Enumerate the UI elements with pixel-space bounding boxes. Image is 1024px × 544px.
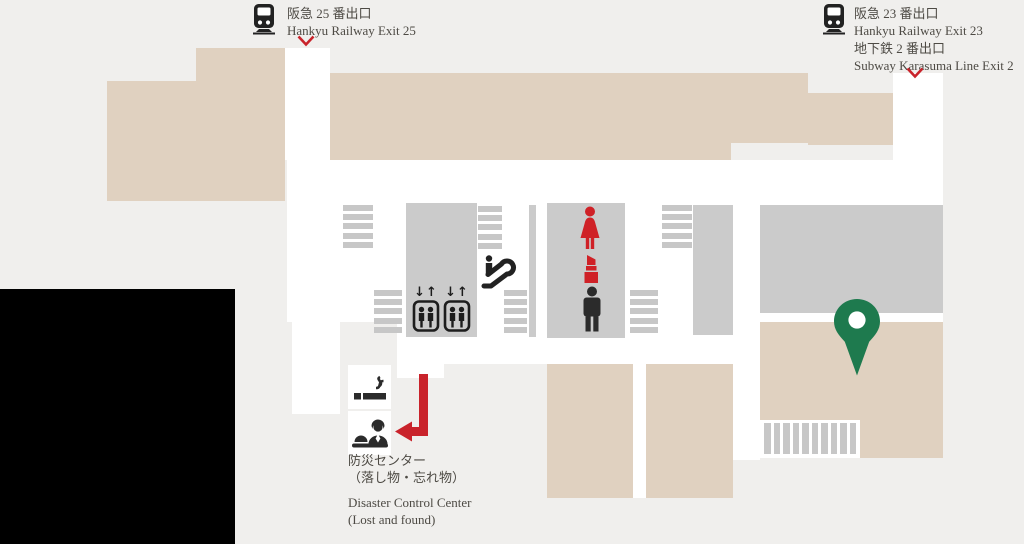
building-block [330,73,731,160]
structure-block [693,205,733,335]
subway-2-jp: 地下鉄 2 番出口 [854,40,1014,57]
elevator-icon: ↓↑ [442,286,472,332]
man-restroom-icon [578,286,606,333]
disaster-jp-1: 防災センター [348,452,471,469]
disaster-center-label: 防災センター （落し物・忘れ物） Disaster Control Center… [348,452,471,529]
disaster-en-1: Disaster Control Center [348,494,471,511]
stairs-icon [630,290,658,333]
down-chevron-icon [906,67,924,79]
corridor [893,73,943,163]
elevator-icon: ↓↑ [411,286,441,332]
stairs-icon [760,420,860,458]
smoking-area-icon [352,370,388,404]
disaster-jp-2: （落し物・忘れ物） [348,469,471,486]
building-block [731,73,808,143]
stairs-icon [343,205,373,248]
subway-2-en: Subway Karasuma Line Exit 2 [854,57,1014,74]
down-chevron-icon [297,35,315,47]
building-block [196,48,285,201]
stairs-icon [374,290,402,333]
train-icon [252,3,276,35]
label-exit-23: 阪急 23 番出口 Hankyu Railway Exit 23 [854,5,983,39]
building-block [646,364,733,498]
smoking-area [348,365,391,409]
corridor [733,364,760,460]
reception-icon [351,417,389,450]
disaster-control-center [348,411,391,455]
structure-block [760,205,943,313]
corridor [285,48,330,160]
route-arrow-icon [393,374,431,446]
elevator-arrows: ↓↑ [411,286,441,300]
wall [529,205,536,337]
stairs-icon [478,206,502,249]
corridor [292,322,340,414]
disaster-en-2: (Lost and found) [348,511,471,528]
stairs-icon [504,290,527,333]
elevator-arrows: ↓↑ [442,286,472,300]
corridor [633,364,646,498]
woman-restroom-icon [575,206,605,252]
location-pin-icon [834,299,880,377]
exit-23-jp: 阪急 23 番出口 [854,5,983,22]
exit-25-jp: 阪急 25 番出口 [287,5,416,22]
cosmetics-icon [582,254,601,284]
building-block [808,93,893,145]
building-block [547,364,633,498]
redacted-black-region [0,289,235,544]
building-block [107,81,196,201]
stairs-icon [662,205,692,248]
escalator-icon [480,251,520,291]
station-floor-map: 阪急 25 番出口 Hankyu Railway Exit 25 阪急 23 番… [0,0,1024,544]
train-icon [822,3,846,35]
label-subway-exit-2: 地下鉄 2 番出口 Subway Karasuma Line Exit 2 [854,40,1014,74]
exit-23-en: Hankyu Railway Exit 23 [854,22,983,39]
